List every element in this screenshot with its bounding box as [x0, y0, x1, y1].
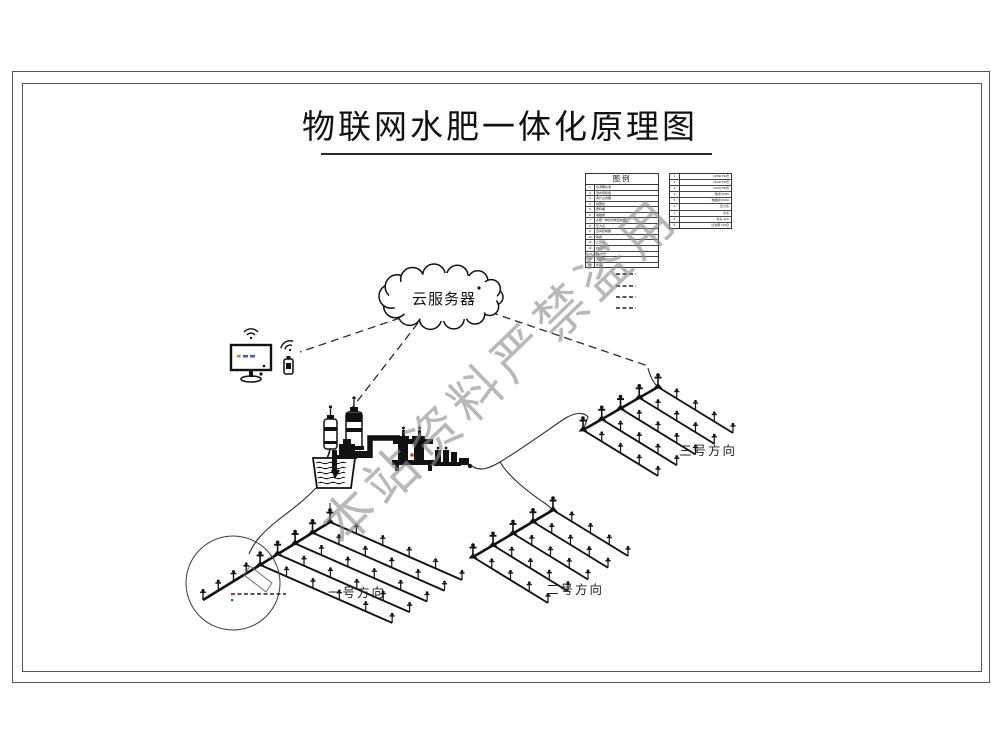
legend-row-name: 压力表 [680, 204, 731, 209]
legend-row-name: DN50 PE管 [680, 174, 731, 179]
legend-row-name: 球阀 DN50 [680, 192, 731, 197]
legend-row-name: 电磁阀 DN40 [680, 198, 731, 203]
screen-blue-mark [243, 355, 248, 358]
legend-row-name: 水肥一体化智能控制器 [595, 218, 658, 223]
legend-row-name: 过滤网 120目 [680, 223, 731, 228]
link-cloud-field3 [478, 308, 648, 366]
filter-skid [392, 427, 436, 472]
legend-row-no: 10 [586, 235, 595, 240]
legend-title: 图例 [586, 174, 658, 185]
legend-row-name: PE支管 [595, 252, 658, 257]
legend-row-name: DN32 PE管 [680, 186, 731, 191]
legend-row-no: 3 [670, 186, 680, 191]
legend-row-no: 1 [670, 174, 680, 179]
field2-label: 二号方向 [546, 579, 604, 598]
legend-row-name: 止回阀 [595, 240, 658, 245]
valve-manifold [433, 447, 472, 469]
legend-row-name: 施肥机 [595, 202, 658, 207]
dongle-plug [287, 356, 291, 359]
legend-row-no: 1 [586, 185, 595, 190]
legend-row-name: 水表 [680, 211, 731, 216]
field-1 [200, 508, 464, 623]
legend-row-no: 9 [586, 229, 595, 234]
link-cloud-monitor [300, 318, 400, 352]
legend-row-no: 6 [670, 204, 680, 209]
legend-row-no: 6 [586, 213, 595, 218]
field3-label: 三号方向 [679, 440, 737, 459]
pipeline-to-field3 [472, 413, 588, 468]
legend-row-name: 田间控制器 [595, 229, 658, 234]
legend-row-name: 压力表 [595, 224, 658, 229]
legend-table-main: 图例 1水源蓄水池2潜水泵机组3叠片过滤器4施肥机5肥料桶6电磁阀7水肥一体化智… [585, 173, 659, 268]
callout-red-tick [231, 593, 234, 595]
screen-blue-mark2 [250, 355, 255, 358]
callout-blue-tick [231, 599, 233, 601]
legend-row-no: 8 [586, 224, 595, 229]
legend-row-name: 肥料桶 [595, 207, 658, 212]
legend-row-no: 13 [586, 252, 595, 257]
legend-row-name: 电磁阀 [595, 213, 658, 218]
legend-row-name: 滴头 4L/h [680, 217, 731, 222]
legend-row-name: 喷头 [595, 263, 658, 268]
legend-row-name: 滴灌带 [595, 257, 658, 262]
field1-label: 一号方向 [328, 582, 386, 601]
wifi-icon [244, 329, 258, 339]
legend-row-no: 4 [586, 202, 595, 207]
legend-row-no: 4 [670, 192, 680, 197]
legend-row-name: PE主管 [595, 246, 658, 251]
fertilizer-tank-a [324, 405, 337, 449]
legend-linetype-samples [616, 274, 636, 308]
monitor-base-dot [259, 372, 262, 375]
callout-parallelogram [244, 566, 272, 592]
legend-row-no: 15 [586, 263, 595, 268]
diagram-canvas [0, 0, 1000, 750]
detail-callout [186, 536, 286, 630]
cloud-server-label: 云服务器 [404, 288, 484, 309]
legend-row-no: 2 [586, 191, 595, 196]
pump-fertilizer-station [313, 396, 472, 488]
legend-row-no: 5 [586, 207, 595, 212]
legend-row-no: 7 [670, 211, 680, 216]
irrigation-fields [200, 373, 735, 623]
legend-row-no: 2 [670, 180, 680, 185]
drawing-page: 物联网水肥一体化原理图 图例 1水源蓄水池2潜水泵机组3叠片过滤器4施肥机5肥料… [0, 0, 1000, 750]
legend-table-secondary: 1DN50 PE管2DN40 PE管3DN32 PE管4球阀 DN505电磁阀 … [669, 173, 732, 229]
legend-row: 15喷头 [586, 263, 658, 268]
mobile-dongle [279, 339, 296, 374]
dongle-band [286, 363, 291, 369]
monitor-workstation [231, 329, 271, 382]
field-3 [579, 373, 736, 476]
legend-row-no: 12 [586, 246, 595, 251]
legend-row-name: 叠片过滤器 [595, 196, 658, 201]
legend-row-no: 7 [586, 218, 595, 223]
legend-row-no: 3 [586, 196, 595, 201]
legend-row-no: 5 [670, 198, 680, 203]
legend-row-name: 球阀 [595, 235, 658, 240]
legend-row-no: 8 [670, 217, 680, 222]
legend-row-no: 11 [586, 240, 595, 245]
screen-orange-mark [237, 355, 241, 358]
legend-row-name: 水源蓄水池 [595, 185, 658, 190]
pipeline-to-field2 [500, 462, 553, 510]
monitor-power-dot [263, 365, 266, 368]
legend-row-name: DN40 PE管 [680, 180, 731, 185]
legend-row-no: 14 [586, 257, 595, 262]
legend-row-no: 9 [670, 223, 680, 228]
legend-row: 9过滤网 120目 [670, 223, 731, 228]
wifi-icon [279, 339, 296, 355]
link-cloud-controller [352, 323, 418, 408]
legend-row-name: 潜水泵机组 [595, 191, 658, 196]
